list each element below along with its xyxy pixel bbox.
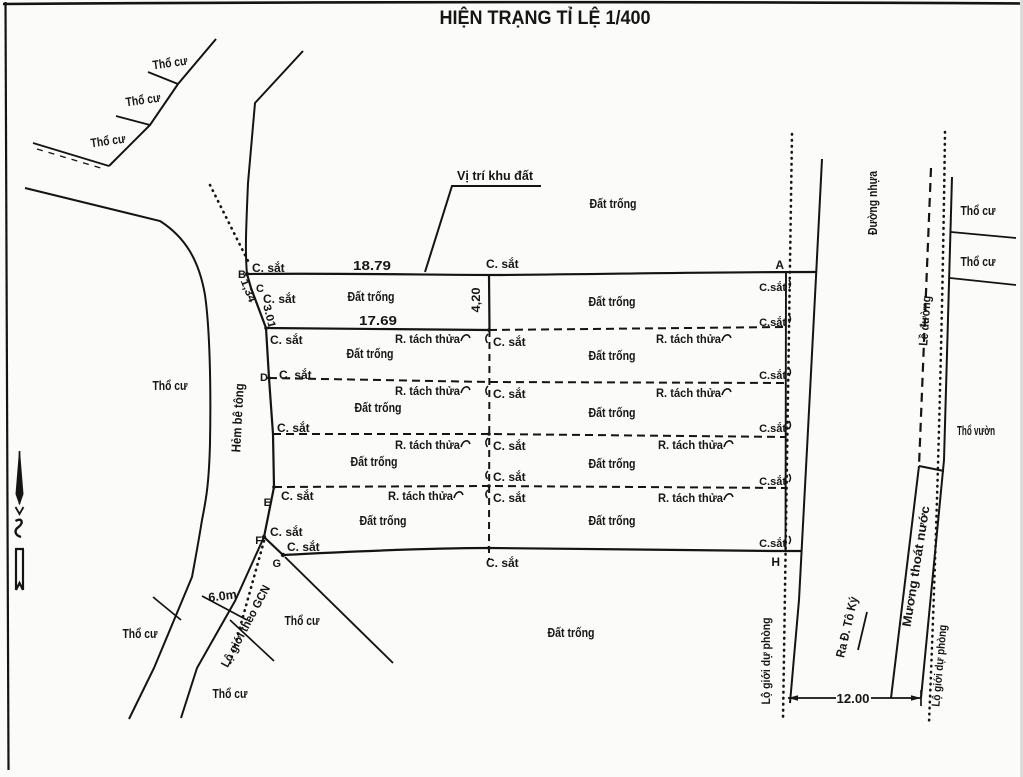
svg-text:Đất trống: Đất trống xyxy=(590,197,637,211)
svg-text:D: D xyxy=(260,372,268,384)
svg-text:C.sắt: C.sắt xyxy=(759,475,786,488)
svg-text:C. sắt: C. sắt xyxy=(493,334,526,349)
svg-text:A: A xyxy=(775,258,784,272)
svg-text:C. sắt: C. sắt xyxy=(493,490,526,505)
svg-text:4,20: 4,20 xyxy=(469,287,483,312)
svg-text:C. sắt: C. sắt xyxy=(270,524,303,539)
svg-text:Đất trống: Đất trống xyxy=(347,347,394,361)
svg-text:HIỆN TRẠNG TỈ LỆ 1/400: HIỆN TRẠNG TỈ LỆ 1/400 xyxy=(440,5,651,29)
svg-text:C. sắt: C. sắt xyxy=(277,420,310,435)
svg-text:C. sắt: C. sắt xyxy=(287,539,320,554)
svg-text:Đất trống: Đất trống xyxy=(589,349,636,363)
svg-text:Đường nhựa: Đường nhựa xyxy=(865,170,880,235)
svg-text:C. sắt: C. sắt xyxy=(252,260,285,275)
svg-text:Thổ cư: Thổ cư xyxy=(153,379,189,393)
svg-text:C. sắt: C. sắt xyxy=(281,488,314,503)
svg-text:C. sắt: C. sắt xyxy=(263,291,296,306)
svg-text:Đất trống: Đất trống xyxy=(589,295,636,309)
svg-text:C. sắt: C. sắt xyxy=(486,555,519,570)
svg-text:C. sắt: C. sắt xyxy=(279,367,312,382)
svg-text:C.sắt: C.sắt xyxy=(759,422,786,435)
svg-text:R. tách thửa: R. tách thửa xyxy=(658,491,723,505)
svg-text:Thổ cư: Thổ cư xyxy=(961,255,997,269)
svg-text:Thổ cư: Thổ cư xyxy=(123,627,159,641)
svg-text:Đất trống: Đất trống xyxy=(589,457,636,471)
svg-text:C.sắt: C.sắt xyxy=(759,537,786,550)
svg-text:17.69: 17.69 xyxy=(359,313,397,328)
svg-text:R. tách thửa: R. tách thửa xyxy=(395,384,460,398)
svg-text:12.00: 12.00 xyxy=(837,691,870,706)
svg-text:G: G xyxy=(272,558,281,570)
svg-text:C. sắt: C. sắt xyxy=(493,386,526,401)
svg-text:Vị trí khu đất: Vị trí khu đất xyxy=(457,168,534,183)
svg-text:Thổ vườn: Thổ vườn xyxy=(957,424,995,438)
svg-text:E: E xyxy=(264,497,271,509)
svg-text:C. sắt: C. sắt xyxy=(493,469,526,484)
svg-text:18.79: 18.79 xyxy=(353,258,391,273)
svg-text:C.sắt: C.sắt xyxy=(759,316,786,329)
svg-text:R. tách thửa: R. tách thửa xyxy=(656,386,721,400)
svg-text:H: H xyxy=(771,555,780,569)
svg-text:Thổ cư: Thổ cư xyxy=(213,687,249,701)
svg-text:C. sắt: C. sắt xyxy=(493,438,526,453)
svg-text:Đất trống: Đất trống xyxy=(589,406,636,420)
svg-text:Đất trống: Đất trống xyxy=(355,401,402,415)
svg-text:Đất trống: Đất trống xyxy=(360,514,407,528)
svg-text:R. tách thửa: R. tách thửa xyxy=(395,332,460,346)
svg-text:Lộ giới dự phòng: Lộ giới dự phòng xyxy=(759,618,773,705)
svg-text:C. sắt: C. sắt xyxy=(270,332,303,347)
svg-text:R. tách thửa: R. tách thửa xyxy=(658,438,723,452)
svg-text:R. tách thửa: R. tách thửa xyxy=(395,438,460,452)
svg-text:Thổ cư: Thổ cư xyxy=(961,204,997,218)
svg-text:Đất trống: Đất trống xyxy=(589,514,636,528)
svg-text:Thổ cư: Thổ cư xyxy=(285,614,321,628)
svg-text:C.sắt: C.sắt xyxy=(759,281,786,294)
svg-text:C. sắt: C. sắt xyxy=(486,256,519,271)
svg-text:Đất trống: Đất trống xyxy=(351,455,398,469)
svg-text:F: F xyxy=(255,535,262,547)
svg-text:C.sắt: C.sắt xyxy=(759,369,786,382)
svg-text:R. tách thửa: R. tách thửa xyxy=(388,489,453,503)
svg-text:R. tách thửa: R. tách thửa xyxy=(656,332,721,346)
svg-text:Đất trống: Đất trống xyxy=(348,290,395,304)
svg-text:Đất trống: Đất trống xyxy=(548,626,595,640)
